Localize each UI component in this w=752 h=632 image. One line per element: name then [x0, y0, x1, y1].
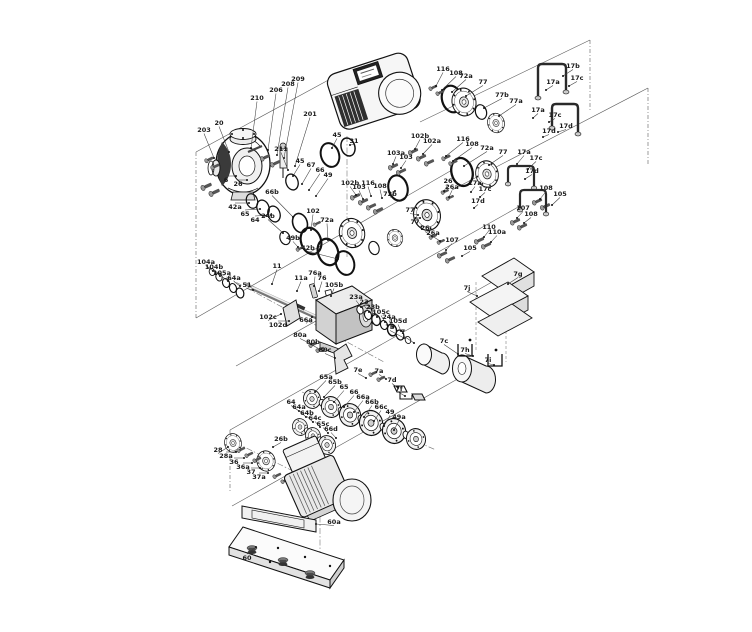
part-label-110a: 110a: [488, 228, 506, 243]
svg-text:64a: 64a: [227, 274, 240, 282]
svg-text:49a: 49a: [392, 413, 405, 421]
svg-text:210: 210: [250, 94, 264, 102]
part-label-17c: 17c: [568, 74, 584, 87]
part-label-37a: 37a: [252, 472, 269, 481]
svg-text:17a: 17a: [546, 78, 559, 86]
svg-text:108: 108: [524, 210, 538, 218]
svg-text:17c: 17c: [479, 185, 492, 193]
svg-text:102c: 102c: [259, 313, 277, 321]
svg-text:7f: 7f: [395, 385, 403, 393]
svg-text:24b: 24b: [261, 212, 275, 220]
svg-text:49: 49: [323, 171, 333, 179]
svg-text:17c: 17c: [549, 111, 562, 119]
pump-exploded-diagram: 2032021020620820920121162645314567664966…: [0, 0, 752, 632]
part-label-107: 107: [445, 236, 459, 251]
part-label-102a: 102a: [422, 137, 441, 155]
part-label-116: 116: [435, 65, 450, 87]
svg-text:7g: 7g: [513, 270, 523, 278]
svg-text:51: 51: [242, 281, 252, 289]
svg-text:45: 45: [295, 157, 305, 165]
svg-text:17d: 17d: [525, 167, 539, 175]
svg-text:72a: 72a: [320, 216, 333, 224]
part-label-17d: 17d: [524, 167, 539, 180]
part-label-203: 203: [197, 126, 215, 159]
part-label-77a: 77a: [498, 97, 523, 117]
svg-text:7b: 7b: [385, 323, 395, 331]
svg-text:7c: 7c: [440, 337, 449, 345]
svg-text:105: 105: [463, 244, 477, 252]
svg-text:108: 108: [465, 140, 479, 148]
svg-text:64: 64: [250, 216, 260, 224]
part-label-7i: 7i: [485, 356, 495, 366]
part-label-103: 103: [399, 153, 413, 169]
part-label-7c: 7c: [440, 337, 459, 355]
svg-text:66a: 66a: [299, 316, 312, 324]
svg-text:67: 67: [306, 161, 315, 169]
svg-text:7e: 7e: [354, 366, 364, 374]
svg-text:201: 201: [303, 110, 317, 118]
svg-text:31: 31: [349, 137, 359, 145]
part-label-49b: 49b: [286, 234, 300, 248]
part-label-77b: 77b: [483, 91, 509, 109]
svg-text:7i: 7i: [485, 356, 492, 364]
part-label-17d: 17d: [471, 197, 485, 209]
svg-text:66b: 66b: [265, 188, 279, 196]
part-label-31: 31: [349, 137, 359, 146]
svg-text:108: 108: [539, 184, 553, 192]
svg-text:26b: 26b: [274, 435, 288, 443]
part-label-7e: 7e: [354, 366, 367, 379]
svg-text:102: 102: [306, 207, 320, 215]
svg-text:77: 77: [410, 218, 419, 226]
part-label-60a: 60a: [315, 518, 341, 526]
sensor-pipes: [505, 64, 581, 216]
svg-text:65: 65: [240, 210, 250, 218]
svg-text:49b: 49b: [286, 234, 300, 242]
svg-text:77: 77: [478, 78, 487, 86]
svg-text:103: 103: [399, 153, 413, 161]
svg-text:17d: 17d: [559, 122, 573, 130]
svg-text:77a: 77a: [509, 97, 522, 105]
part-label-26b: 26b: [272, 435, 288, 448]
svg-text:80c: 80c: [319, 346, 332, 354]
svg-text:17b: 17b: [566, 62, 580, 70]
svg-text:80b: 80b: [306, 338, 320, 346]
part-label-102c: 102c: [259, 313, 282, 321]
svg-text:209: 209: [291, 75, 305, 83]
svg-text:17c: 17c: [571, 74, 584, 82]
svg-text:107: 107: [445, 236, 459, 244]
part-label-102d: 102d: [269, 320, 290, 329]
part-label-17d: 17d: [542, 127, 556, 138]
svg-text:7h: 7h: [460, 346, 470, 354]
svg-text:102a: 102a: [423, 137, 441, 145]
svg-text:6: 6: [224, 176, 229, 184]
part-label-17a: 17a: [545, 78, 560, 91]
part-label-26a: 26a: [426, 229, 441, 242]
svg-text:37a: 37a: [252, 473, 265, 481]
svg-text:102d: 102d: [269, 321, 288, 329]
svg-text:7: 7: [401, 328, 406, 336]
svg-text:211: 211: [274, 145, 288, 153]
svg-text:77b: 77b: [495, 91, 509, 99]
svg-text:105: 105: [553, 190, 567, 198]
part-label-45: 45: [292, 157, 305, 177]
svg-text:66d: 66d: [324, 425, 338, 433]
part-label-206: 206: [267, 86, 283, 151]
exploded-parts-diagram-page: 2032021020620820920121162645314567664966…: [0, 0, 752, 632]
svg-text:60: 60: [242, 554, 252, 562]
svg-text:72a: 72a: [459, 72, 472, 80]
svg-text:65: 65: [339, 383, 349, 391]
part-label-17a: 17a: [531, 106, 544, 119]
svg-text:7a: 7a: [375, 367, 384, 375]
part-label-72a: 72a: [320, 216, 333, 241]
svg-text:11: 11: [272, 262, 282, 270]
svg-text:7d: 7d: [387, 376, 397, 384]
part-label-49: 49: [315, 171, 333, 197]
part-label-105: 105: [461, 244, 477, 257]
part-label-77: 77: [410, 217, 421, 226]
svg-text:203: 203: [197, 126, 211, 134]
part-label-11a: 11a: [294, 274, 307, 292]
svg-text:116: 116: [436, 65, 450, 73]
svg-text:45: 45: [332, 131, 342, 139]
part-label-17a: 17a: [516, 148, 531, 165]
svg-text:72b: 72b: [383, 190, 397, 198]
svg-text:26: 26: [233, 180, 243, 188]
svg-text:42b: 42b: [301, 244, 315, 252]
svg-text:26a: 26a: [426, 229, 439, 237]
svg-text:72a: 72a: [480, 144, 493, 152]
part-label-7j: 7j: [464, 284, 478, 297]
svg-text:17c: 17c: [530, 154, 543, 162]
svg-text:77: 77: [498, 148, 507, 156]
svg-text:77: 77: [405, 206, 414, 214]
part-label-66a: 66a: [299, 316, 313, 324]
svg-text:80a: 80a: [293, 331, 306, 339]
svg-text:17d: 17d: [542, 127, 556, 135]
svg-text:11a: 11a: [294, 274, 307, 282]
coupling-parts: [368, 344, 495, 400]
part-label-72b: 72b: [383, 190, 397, 198]
svg-text:60a: 60a: [327, 518, 340, 526]
svg-text:7j: 7j: [464, 284, 471, 292]
part-label-65: 65: [333, 383, 349, 403]
svg-text:17a: 17a: [531, 106, 544, 114]
svg-text:108: 108: [373, 182, 387, 190]
svg-text:105b: 105b: [325, 281, 344, 289]
part-label-105: 105: [551, 190, 567, 206]
svg-text:26a: 26a: [445, 183, 458, 191]
svg-text:110a: 110a: [488, 228, 506, 236]
part-label-108: 108: [523, 210, 538, 224]
motor-with-controller: [325, 50, 426, 134]
svg-text:20: 20: [214, 119, 224, 127]
svg-text:17d: 17d: [471, 197, 485, 205]
